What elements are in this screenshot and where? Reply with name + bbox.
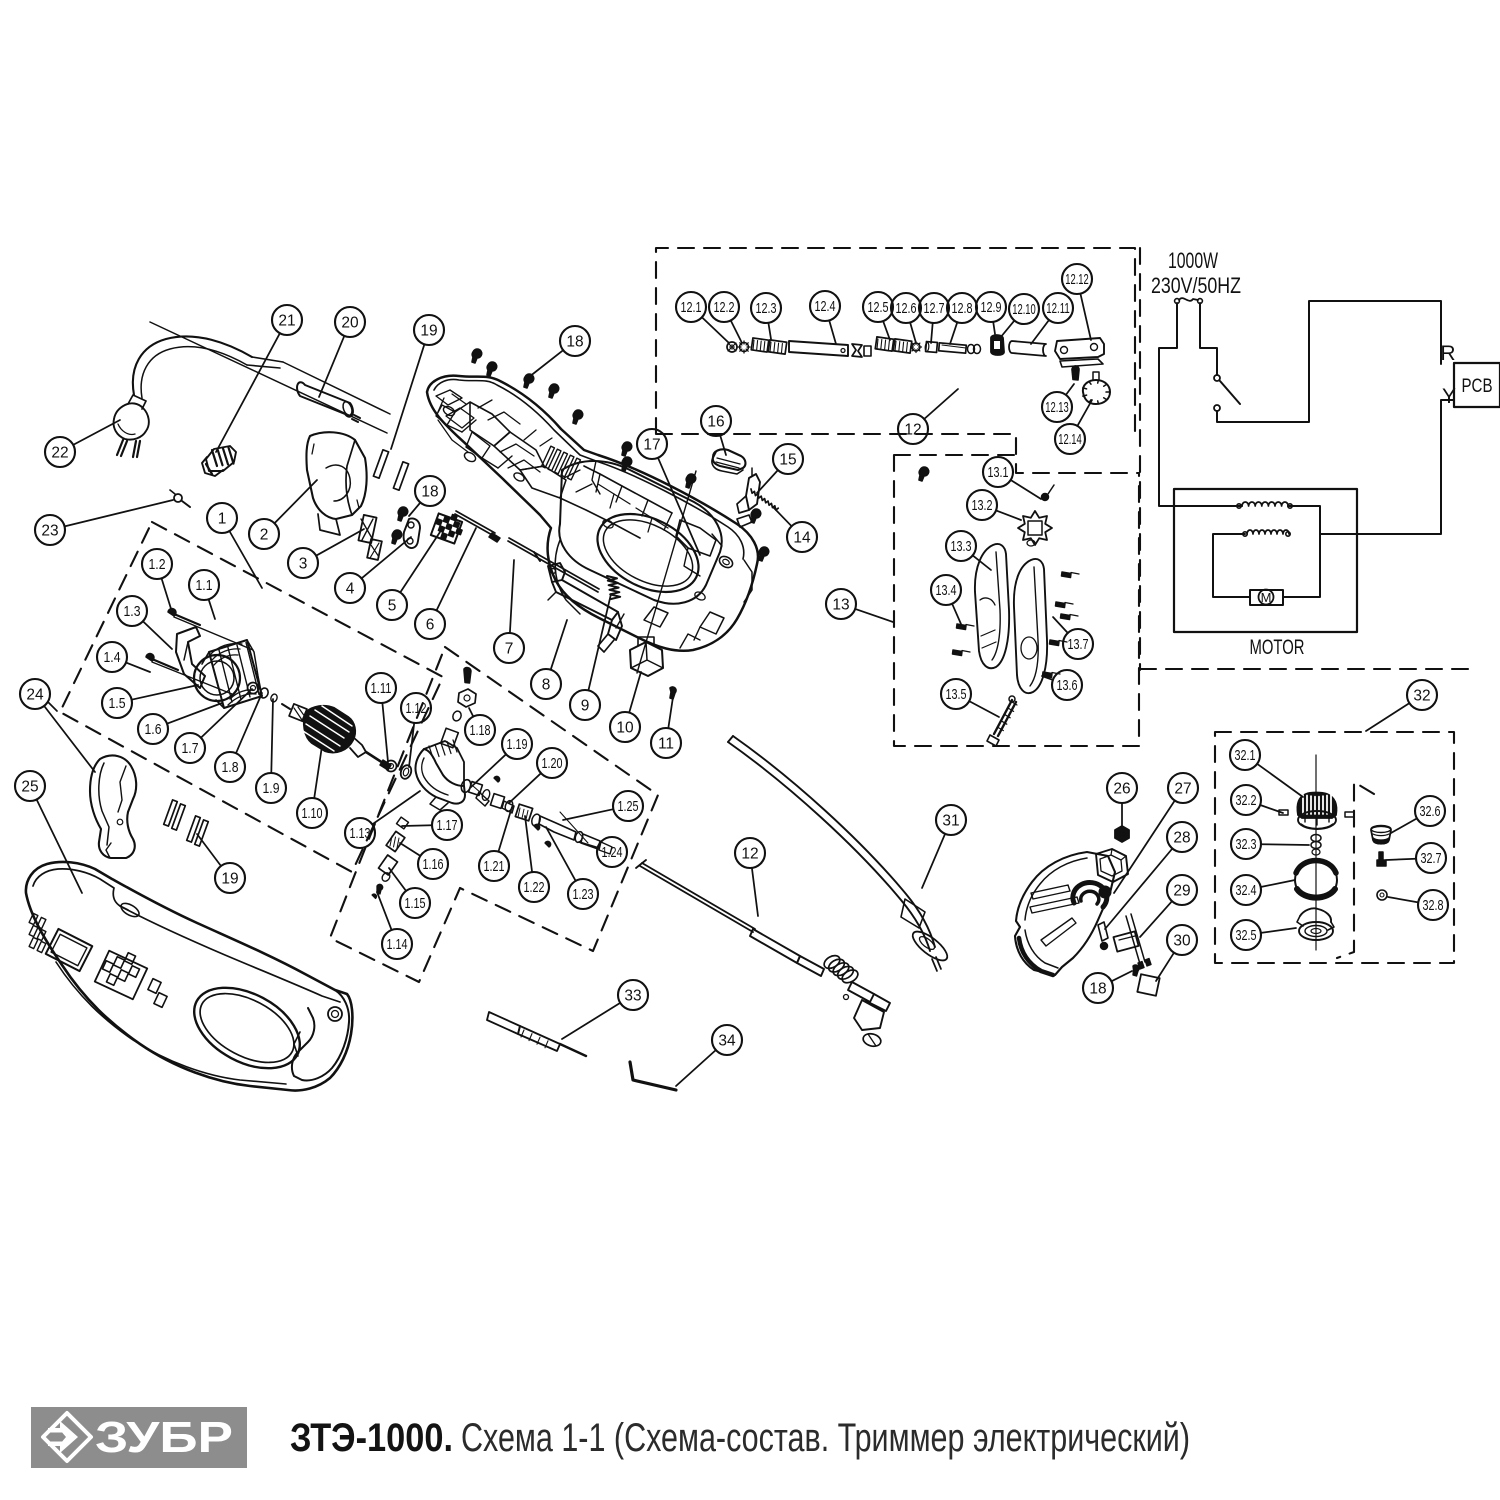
svg-text:1.4: 1.4 [104, 649, 121, 666]
svg-text:13.2: 13.2 [972, 497, 993, 514]
svg-text:2: 2 [260, 526, 269, 543]
svg-text:11: 11 [658, 735, 674, 752]
svg-text:14: 14 [793, 529, 811, 546]
svg-text:12.10: 12.10 [1012, 301, 1036, 318]
svg-text:1.24: 1.24 [602, 844, 623, 861]
svg-text:MOTOR: MOTOR [1250, 636, 1305, 659]
svg-text:15: 15 [779, 451, 796, 468]
svg-text:32.8: 32.8 [1423, 897, 1444, 914]
svg-text:PCB: PCB [1462, 376, 1493, 397]
svg-text:32.6: 32.6 [1420, 803, 1441, 820]
svg-text:1.22: 1.22 [524, 879, 545, 896]
svg-text:Y: Y [1442, 385, 1456, 408]
svg-text:230V/50HZ: 230V/50HZ [1151, 273, 1241, 298]
svg-text:32.3: 32.3 [1236, 836, 1257, 853]
svg-text:12.7: 12.7 [924, 300, 945, 317]
svg-text:23: 23 [41, 522, 58, 539]
svg-text:7: 7 [505, 640, 514, 657]
svg-text:1.10: 1.10 [302, 805, 323, 822]
svg-text:32.5: 32.5 [1236, 927, 1257, 944]
svg-text:6: 6 [426, 616, 435, 633]
svg-text:27: 27 [1174, 780, 1191, 797]
svg-text:1.12: 1.12 [406, 700, 427, 717]
svg-text:1.23: 1.23 [573, 886, 594, 903]
svg-text:M: M [1261, 590, 1272, 605]
svg-text:1.11: 1.11 [371, 680, 392, 697]
svg-text:1.5: 1.5 [109, 695, 126, 712]
svg-text:29: 29 [1173, 882, 1190, 899]
svg-text:12.12: 12.12 [1065, 271, 1089, 288]
svg-text:1.21: 1.21 [484, 858, 505, 875]
svg-text:32.2: 32.2 [1236, 792, 1257, 809]
svg-text:22: 22 [51, 444, 68, 461]
svg-text:19: 19 [221, 870, 238, 887]
svg-text:ЗТЭ-1000.: ЗТЭ-1000. [290, 1416, 453, 1460]
svg-text:12.8: 12.8 [952, 300, 973, 317]
svg-text:1.17: 1.17 [437, 817, 458, 834]
svg-text:1.16: 1.16 [423, 856, 444, 873]
svg-text:13.3: 13.3 [951, 538, 972, 555]
svg-text:18: 18 [1089, 980, 1106, 997]
svg-text:5: 5 [388, 597, 397, 614]
svg-text:1.1: 1.1 [196, 577, 213, 594]
svg-text:32.4: 32.4 [1236, 882, 1257, 899]
svg-text:3: 3 [299, 555, 308, 572]
svg-text:16: 16 [707, 413, 724, 430]
svg-text:12.2: 12.2 [714, 299, 735, 316]
svg-text:18: 18 [566, 333, 583, 350]
svg-text:1.3: 1.3 [124, 603, 141, 620]
svg-text:Схема 1-1 (Схема-состав. Тримм: Схема 1-1 (Схема-состав. Триммер электри… [461, 1416, 1190, 1460]
svg-text:13: 13 [832, 596, 849, 613]
svg-text:12.9: 12.9 [981, 299, 1002, 316]
svg-text:1000W: 1000W [1168, 248, 1218, 273]
svg-text:17: 17 [643, 436, 660, 453]
svg-text:30: 30 [1173, 932, 1191, 949]
svg-text:1.20: 1.20 [542, 755, 563, 772]
svg-text:12.1: 12.1 [681, 299, 702, 316]
svg-text:8: 8 [542, 676, 551, 693]
svg-text:1.7: 1.7 [182, 740, 199, 757]
svg-text:21: 21 [278, 312, 295, 329]
svg-text:12.3: 12.3 [756, 300, 777, 317]
svg-text:31: 31 [942, 812, 959, 829]
svg-text:24: 24 [26, 686, 44, 703]
svg-text:12: 12 [904, 421, 921, 438]
svg-text:1.14: 1.14 [387, 936, 408, 953]
svg-text:1.8: 1.8 [222, 759, 239, 776]
svg-text:34: 34 [718, 1032, 736, 1049]
svg-text:32: 32 [1413, 687, 1430, 704]
svg-text:25: 25 [21, 778, 38, 795]
svg-text:12.14: 12.14 [1058, 431, 1082, 448]
svg-text:12.13: 12.13 [1045, 399, 1069, 416]
svg-text:18: 18 [421, 483, 438, 500]
svg-text:1.15: 1.15 [405, 895, 426, 912]
svg-text:12.5: 12.5 [868, 299, 889, 316]
svg-text:12.6: 12.6 [896, 300, 917, 317]
svg-text:1.2: 1.2 [149, 556, 166, 573]
svg-text:13.5: 13.5 [946, 686, 967, 703]
svg-text:9: 9 [581, 697, 590, 714]
svg-text:1.9: 1.9 [263, 780, 280, 797]
svg-text:32.1: 32.1 [1235, 747, 1256, 764]
svg-text:33: 33 [624, 987, 641, 1004]
svg-text:12.11: 12.11 [1046, 300, 1070, 317]
svg-text:12.4: 12.4 [815, 298, 836, 315]
svg-text:20: 20 [341, 314, 359, 331]
svg-text:1.18: 1.18 [470, 722, 491, 739]
svg-text:1.6: 1.6 [145, 721, 162, 738]
svg-text:10: 10 [616, 719, 634, 736]
svg-text:ЗУБР: ЗУБР [95, 1413, 233, 1462]
svg-text:12: 12 [741, 845, 758, 862]
svg-text:1.25: 1.25 [618, 798, 639, 815]
svg-text:19: 19 [420, 322, 437, 339]
svg-text:13.7: 13.7 [1068, 636, 1089, 653]
svg-text:32.7: 32.7 [1421, 850, 1442, 867]
svg-text:R: R [1440, 342, 1455, 365]
svg-text:28: 28 [1173, 829, 1190, 846]
svg-text:4: 4 [346, 580, 355, 597]
svg-text:13.1: 13.1 [988, 464, 1009, 481]
svg-text:1.19: 1.19 [507, 736, 528, 753]
svg-text:1: 1 [218, 510, 227, 527]
svg-text:13.4: 13.4 [936, 582, 957, 599]
svg-text:1.13: 1.13 [350, 825, 371, 842]
svg-text:26: 26 [1113, 780, 1130, 797]
svg-text:13.6: 13.6 [1057, 677, 1078, 694]
